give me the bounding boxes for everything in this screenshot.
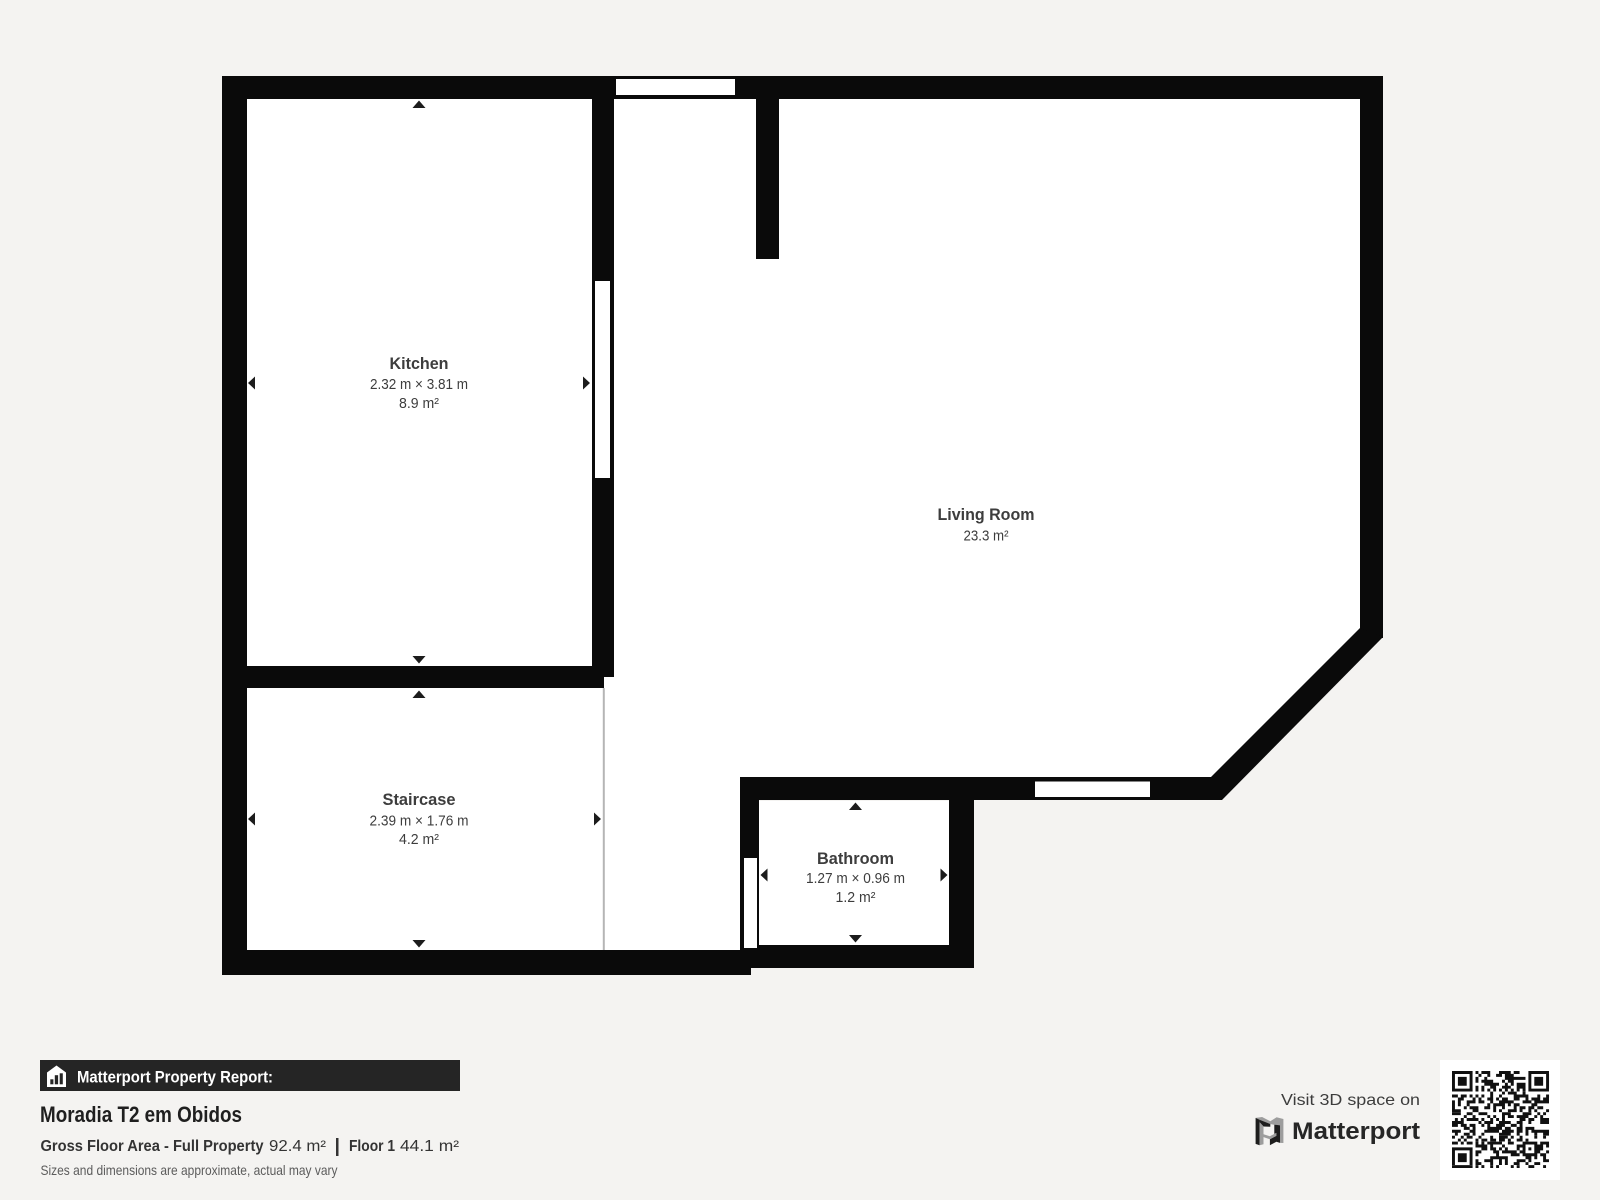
svg-text:Moradia T2 em Obidos: Moradia T2 em Obidos xyxy=(40,1102,242,1127)
svg-text:Staircase: Staircase xyxy=(383,791,456,809)
svg-text:2.32 m × 3.81 m: 2.32 m × 3.81 m xyxy=(370,377,468,393)
svg-text:Kitchen: Kitchen xyxy=(390,355,449,373)
svg-text:Gross Floor Area - Full Proper: Gross Floor Area - Full Property xyxy=(41,1138,264,1155)
svg-text:Matterport: Matterport xyxy=(1292,1118,1420,1145)
svg-text:1.2 m²: 1.2 m² xyxy=(836,890,876,906)
svg-text:Sizes and dimensions are appro: Sizes and dimensions are approximate, ac… xyxy=(41,1162,338,1178)
svg-text:44.1 m²: 44.1 m² xyxy=(400,1138,459,1155)
svg-text:4.2 m²: 4.2 m² xyxy=(399,832,439,848)
svg-text:2.39 m × 1.76 m: 2.39 m × 1.76 m xyxy=(370,814,469,830)
svg-text:Living Room: Living Room xyxy=(938,505,1035,524)
svg-text:1.27 m × 0.96 m: 1.27 m × 0.96 m xyxy=(806,871,905,887)
svg-text:Matterport Property Report:: Matterport Property Report: xyxy=(77,1068,273,1087)
svg-text:92.4 m²: 92.4 m² xyxy=(269,1138,326,1155)
svg-text:Visit 3D space on: Visit 3D space on xyxy=(1281,1092,1420,1109)
svg-text:Floor 1: Floor 1 xyxy=(349,1138,395,1155)
svg-text:8.9 m²: 8.9 m² xyxy=(399,396,439,412)
svg-text:Bathroom: Bathroom xyxy=(817,850,894,868)
svg-text:23.3 m²: 23.3 m² xyxy=(964,529,1009,545)
